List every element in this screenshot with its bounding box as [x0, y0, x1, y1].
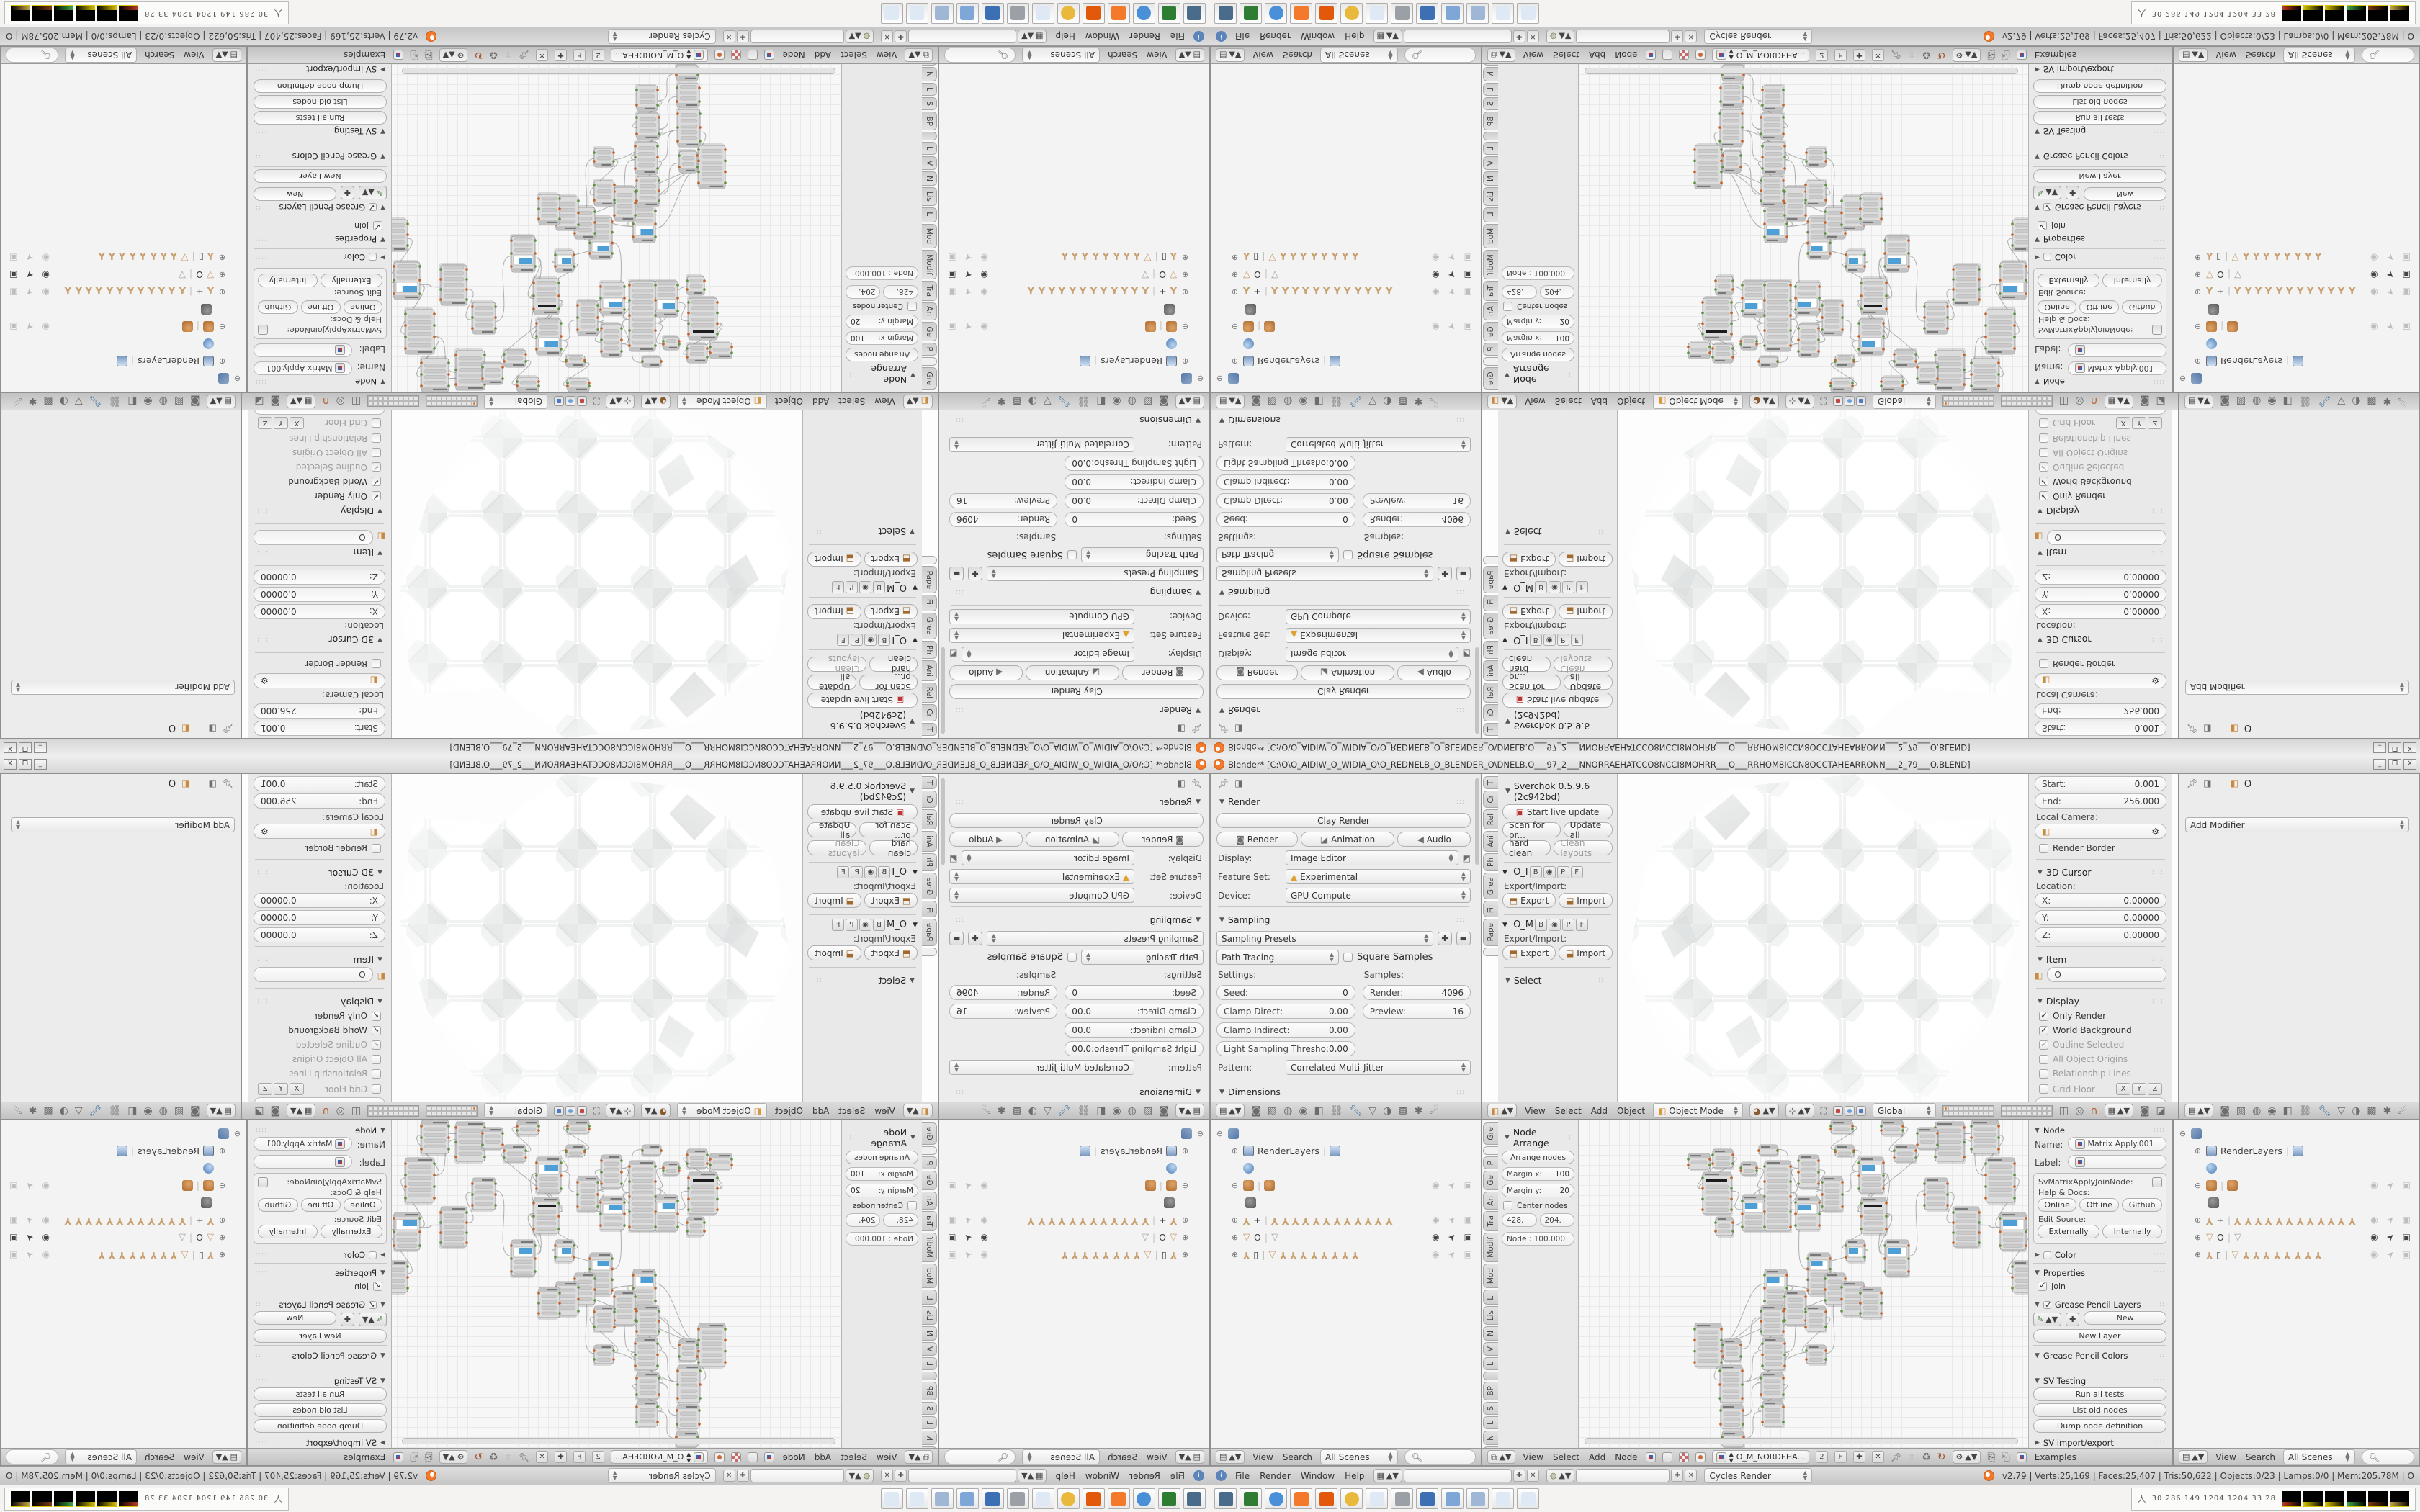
cursor-y-field[interactable]: Y:0.00000	[254, 587, 385, 602]
manipulator-toggle-icon[interactable]: ⛶	[1821, 397, 1827, 406]
compositing-tree-icon[interactable]	[748, 50, 758, 60]
sverchok-node[interactable]	[1783, 1291, 1807, 1327]
toolshelf-tab-active[interactable]	[1483, 556, 1498, 564]
menu-render[interactable]: Render	[1258, 32, 1292, 42]
physics-tab-icon[interactable]: ☄	[982, 397, 991, 407]
collapse-icon[interactable]: ⊖	[1196, 374, 1205, 384]
unlink-tree-button[interactable]: ✕	[1872, 49, 1884, 61]
restriction-toggles[interactable]: ◉➤︎▣	[1432, 1232, 1478, 1242]
dump-node-definition-button[interactable]: Dump node definition	[2033, 1419, 2166, 1433]
sverchok-node[interactable]	[566, 377, 591, 392]
sv-refresh-icon[interactable]: ♻	[489, 1452, 498, 1462]
g2-p-button[interactable]: P	[846, 919, 858, 931]
arrange-val1-field[interactable]: 428.	[1502, 1213, 1537, 1227]
render-layers-tab-icon[interactable]: ▧	[174, 1106, 184, 1116]
import-button-2[interactable]: ⬓ Import	[807, 552, 861, 567]
modifiers-tab-icon[interactable]: 🔧︎	[1058, 397, 1071, 407]
toolshelf-tab-p[interactable]: P	[922, 343, 937, 356]
sverchok-node[interactable]	[1761, 84, 1785, 111]
render-tab-icon[interactable]: ◙	[190, 1106, 200, 1116]
render-button[interactable]: ◙ Render	[1122, 832, 1204, 847]
object-tab-icon[interactable]: ◧	[1096, 1106, 1106, 1116]
gp-layers-checkbox[interactable]	[369, 1301, 377, 1309]
outliner-row[interactable]	[4, 336, 242, 353]
axis-z-button[interactable]: Z	[258, 417, 272, 429]
menu-view[interactable]: View	[2214, 1452, 2237, 1462]
sverchok-node[interactable]	[1805, 146, 1827, 167]
g1-b-button[interactable]: B	[878, 634, 890, 646]
sampling-presets-select[interactable]: Sampling Presets▲▼	[987, 931, 1204, 946]
outliner-row[interactable]: ⊖	[1215, 370, 1478, 387]
offline-button[interactable]: Offline	[2079, 1198, 2119, 1212]
world-background-checkbox[interactable]	[372, 1026, 381, 1035]
sverchok-node[interactable]	[600, 1155, 623, 1190]
outliner-tree[interactable]: ⊖⊕RenderLayers|⊖|◉➤︎▣⊕Y+|YYYYYYYYYYYY◉➤︎…	[2178, 1125, 2416, 1446]
taskbar-app-calculator[interactable]	[1466, 3, 1489, 24]
toolshelf-tab-n[interactable]: N	[1483, 1326, 1498, 1341]
menu-node[interactable]: Node	[781, 50, 806, 60]
outliner-row[interactable]: ⊕RenderLayers|	[942, 353, 1205, 370]
editor-type-button[interactable]: ▤▲▼	[1175, 48, 1204, 62]
physics-tab-icon[interactable]: ☄	[1429, 397, 1438, 407]
sverchok-node[interactable]	[1805, 1345, 1827, 1366]
material-tab-icon[interactable]: ◑	[1028, 1106, 1037, 1116]
editor-type-button[interactable]: ◧▲▼	[903, 395, 933, 408]
sverchok-node[interactable]	[593, 1345, 615, 1366]
menu-select[interactable]: Select	[1551, 1452, 1581, 1462]
info-editor-icon[interactable]: i	[1193, 1470, 1204, 1481]
menu-view[interactable]: View	[1251, 50, 1274, 60]
render-tab-icon[interactable]: ◙	[1159, 1106, 1169, 1116]
sampling-presets-select[interactable]: Sampling Presets▲▼	[1216, 566, 1433, 581]
sverchok-node[interactable]	[676, 81, 701, 107]
render-layers-tab-icon[interactable]: ▧	[2236, 397, 2246, 407]
clip-end-field[interactable]: End:256.000	[254, 703, 385, 719]
externally-button[interactable]: Externally	[321, 1225, 382, 1238]
layers-grid-2[interactable]	[2001, 396, 2053, 408]
taskbar-app-backup-disk[interactable]	[1158, 3, 1180, 24]
taskbar-app-disk-64[interactable]	[982, 3, 1004, 24]
preset-remove-button[interactable]: ▬	[949, 932, 964, 945]
sverchok-node[interactable]	[516, 1120, 540, 1137]
sverchok-node[interactable]	[576, 1176, 599, 1213]
gp-layers-checkbox[interactable]	[2043, 1301, 2051, 1309]
toolshelf-tab-ph[interactable]: Ph	[922, 641, 937, 659]
sverchok-node[interactable]	[1821, 299, 1844, 336]
new-layer-button[interactable]: New Layer	[2033, 1329, 2166, 1343]
compositing-tree-icon[interactable]	[1662, 50, 1672, 60]
toolshelf-tab-grea[interactable]: Grea	[922, 873, 937, 899]
sverchok-node[interactable]	[1739, 1162, 1758, 1177]
toolshelf-tab-p[interactable]: P	[922, 1156, 937, 1169]
toolshelf-tab-l[interactable]: L	[922, 142, 937, 155]
run-all-tests-button[interactable]: Run all tests	[2033, 1387, 2166, 1401]
sverchok-node[interactable]	[599, 1197, 626, 1232]
arrange-val2-field[interactable]: 204.	[846, 1213, 881, 1227]
sverchok-node[interactable]	[1804, 179, 1827, 206]
restriction-toggles[interactable]: ◉➤︎▣	[942, 287, 988, 297]
outliner-row[interactable]: ⊕▽O|▽◉➤︎▣	[2178, 1228, 2416, 1246]
sverchok-node[interactable]	[1952, 263, 1981, 305]
fake-user-button[interactable]: F	[1834, 1451, 1847, 1463]
axis-y-button[interactable]: Y	[274, 1083, 288, 1095]
collapse-icon[interactable]: ⊖	[1215, 1129, 1224, 1138]
sverchok-node[interactable]	[503, 1145, 527, 1164]
layers-grid-1[interactable]	[426, 396, 478, 408]
close-button[interactable]: X	[4, 742, 17, 753]
restriction-toggles[interactable]: ◉➤︎▣	[2370, 253, 2416, 263]
outliner-row[interactable]: ⊖	[2178, 370, 2416, 387]
sv-layout-button[interactable]: ⚙▲▼	[439, 48, 468, 62]
outline-selected-checkbox[interactable]	[372, 1040, 381, 1050]
toolshelf-tab-modif[interactable]: Modif	[1483, 250, 1498, 279]
item-name-field[interactable]: O	[254, 530, 373, 545]
outliner-row[interactable]	[4, 1159, 242, 1176]
cursor-x-field[interactable]: X:0.00000	[2035, 604, 2166, 619]
square-samples-checkbox[interactable]	[1067, 550, 1077, 559]
sverchok-node[interactable]	[709, 1153, 733, 1171]
sv-refresh-icon[interactable]: ♻	[1922, 50, 1931, 60]
sverchok-node[interactable]	[439, 263, 468, 305]
toolshelf-tab-modif[interactable]: Modif	[1483, 1233, 1498, 1262]
manipulator-widgets[interactable]	[1833, 1106, 1866, 1116]
cursor-x-field[interactable]: X:0.00000	[254, 604, 385, 619]
margin-x-field[interactable]: Margin x:100	[846, 1167, 918, 1181]
sverchok-node[interactable]	[676, 107, 702, 147]
shader-tree-icon[interactable]	[1646, 50, 1656, 60]
sv-bake-icon[interactable]: ↻	[474, 50, 483, 60]
snap-proportional-icon[interactable]: ◎	[336, 1106, 345, 1116]
toolshelf-tab-fil[interactable]: Fil	[922, 595, 937, 611]
toolshelf-tab-cr[interactable]: Cr	[922, 791, 937, 808]
g1-b-button[interactable]: B	[1530, 634, 1542, 646]
info-editor-icon[interactable]: i	[1216, 31, 1227, 42]
toolshelf-tab-lis[interactable]: Lis	[1483, 1306, 1498, 1325]
sverchok-node[interactable]	[1984, 307, 2016, 354]
taskbar-app-screenshot-tool[interactable]	[1183, 3, 1206, 24]
clay-render-button[interactable]: Clay Render	[949, 813, 1204, 828]
render-border-checkbox[interactable]	[372, 660, 381, 669]
menu-view[interactable]: View	[1145, 1452, 1168, 1462]
pin-icon[interactable]: 📌︎	[1191, 779, 1202, 788]
taskbar-app-image-viewer[interactable]	[956, 3, 979, 24]
outliner-row[interactable]	[1215, 336, 1478, 353]
toolshelf-tab-active[interactable]	[922, 357, 937, 366]
gp-new-button[interactable]: New	[254, 1311, 336, 1325]
sverchok-node[interactable]	[1687, 341, 1711, 359]
search-input[interactable]: 🔍︎	[944, 48, 1016, 63]
menu-add[interactable]: Add	[1587, 1452, 1607, 1462]
layers-grid-2[interactable]	[367, 1105, 419, 1117]
physics-tab-icon[interactable]: ☄	[2398, 397, 2407, 407]
restriction-toggles[interactable]: ◉➤︎▣	[2370, 1232, 2416, 1242]
users-count-badge[interactable]: 2	[592, 49, 604, 61]
sverchok-node[interactable]	[1794, 1197, 1821, 1232]
internally-button[interactable]: Internally	[258, 274, 318, 287]
margin-y-field[interactable]: Margin y:20	[1502, 315, 1574, 328]
restriction-toggles[interactable]: ◉➤︎▣	[1432, 253, 1478, 263]
constraints-tab-icon[interactable]: ⛓	[1077, 1106, 1090, 1116]
constraints-tab-icon[interactable]: ⛓	[2299, 1106, 2312, 1116]
toolshelf-tab-gre[interactable]: Gre	[1483, 367, 1498, 390]
snap-element-button[interactable]: ▦▲▼	[287, 1104, 315, 1117]
taskbar-app-disk-64[interactable]	[982, 1488, 1004, 1509]
modifiers-tab-icon[interactable]: 🔧︎	[2318, 1106, 2331, 1116]
render-samples-field[interactable]: Render:4096	[1363, 512, 1471, 527]
restriction-toggles[interactable]: ◉➤︎▣	[2370, 1249, 2416, 1259]
expand-icon[interactable]: ⊕	[1180, 1250, 1190, 1259]
sverchok-node[interactable]	[678, 149, 699, 173]
gp-layers-checkbox[interactable]	[2043, 204, 2051, 212]
menu-search[interactable]: Search	[1106, 50, 1139, 60]
outliner-row[interactable]: ⊖	[942, 1125, 1205, 1142]
horizontal-scrollbar[interactable]	[1585, 68, 2018, 74]
toolshelf-tab-l[interactable]: L	[1483, 83, 1498, 96]
add-modifier-select[interactable]: Add Modifier▲▼	[11, 817, 235, 832]
toolshelf-tab-t[interactable]: T	[922, 723, 937, 736]
scene-delete-button[interactable]: ✕	[1685, 30, 1697, 42]
preview-samples-field[interactable]: Preview:16	[949, 1004, 1057, 1019]
taskbar-app-screenshot-tool[interactable]	[1214, 3, 1237, 24]
only-render-checkbox[interactable]	[372, 1012, 381, 1021]
outline-selected-checkbox[interactable]	[372, 463, 381, 472]
menu-window[interactable]: Window	[1299, 1471, 1336, 1481]
center-nodes-checkbox[interactable]	[907, 1201, 917, 1210]
scene-tab-icon[interactable]: ◍	[1128, 1106, 1137, 1116]
restriction-toggles[interactable]: ◉➤︎▣	[1432, 322, 1478, 332]
docs-icon[interactable]	[2152, 325, 2162, 336]
sverchok-node[interactable]	[686, 1217, 706, 1238]
texture-tab-icon[interactable]: ▩	[43, 397, 53, 407]
toolshelf-tab-ph[interactable]: Ph	[1483, 641, 1498, 659]
scan-for-props-button[interactable]: Scan for pr...	[1502, 822, 1561, 837]
axis-y-button[interactable]: Y	[2132, 417, 2146, 429]
gp-add-button[interactable]: ✚	[341, 1313, 354, 1326]
outliner-row[interactable]: ⊕Y+|YYYYYYYYYYYY◉➤︎▣	[2178, 284, 2416, 301]
sverchok-node[interactable]	[1859, 192, 1883, 225]
outliner-row[interactable]: ⊕RenderLayers|	[4, 1142, 242, 1159]
sverchok-node[interactable]	[420, 356, 450, 392]
close-button[interactable]: X	[2403, 742, 2416, 753]
toolshelf-tab-li[interactable]: Li	[1483, 1290, 1498, 1305]
object-tab-icon[interactable]: ◧	[2283, 1106, 2293, 1116]
data-tab-icon[interactable]: ▽	[2337, 397, 2345, 407]
display-mode-select[interactable]: All Scenes▲▼	[1022, 48, 1100, 63]
object-origins-checkbox[interactable]	[372, 1055, 381, 1064]
sverchok-node[interactable]	[635, 84, 659, 111]
export-button-1[interactable]: ⬒ Export	[1502, 604, 1556, 619]
arrange-val1-field[interactable]: 428.	[884, 1213, 919, 1227]
render-button[interactable]: ◙ Render	[1216, 665, 1298, 680]
outliner-row[interactable]: ⊕Y+|YYYYYYYYYYYY◉➤︎▣	[2178, 1211, 2416, 1228]
horizontal-scrollbar[interactable]	[1585, 1438, 2018, 1444]
menu-help[interactable]: Help	[1054, 32, 1076, 42]
sverchok-tree-icon[interactable]	[714, 50, 725, 60]
axis-z-button[interactable]: Z	[258, 1083, 272, 1095]
taskbar-app-volume[interactable]	[1391, 1488, 1413, 1509]
toolshelf-tab-v[interactable]: V	[1483, 1342, 1498, 1356]
examples-menu[interactable]: Examples	[342, 1452, 387, 1462]
modifiers-tab-icon[interactable]: 🔧︎	[2318, 397, 2331, 407]
world-tab-icon[interactable]: ◉	[1112, 1106, 1121, 1116]
expand-icon[interactable]: ⊕	[1230, 1233, 1240, 1242]
collapse-icon[interactable]: ⊖	[233, 374, 242, 384]
sv-paste-icon[interactable]: ⎗	[2002, 1452, 2010, 1462]
clip-start-field[interactable]: Start:0.001	[254, 776, 385, 791]
g2-p-button[interactable]: P	[1562, 919, 1574, 931]
square-samples-checkbox[interactable]	[1343, 550, 1353, 559]
clean-layouts-button[interactable]: Clean layouts	[807, 657, 866, 672]
editor-type-button[interactable]: ⧉▲▼	[905, 1450, 933, 1464]
texture-tab-icon[interactable]: ▩	[1398, 1106, 1407, 1116]
sverchok-node[interactable]	[481, 361, 504, 384]
menu-file[interactable]: File	[1234, 1471, 1251, 1481]
toolshelf-tab-active[interactable]	[922, 1372, 937, 1380]
gp-new-button[interactable]: New	[2084, 187, 2166, 201]
restriction-toggles[interactable]: ◉➤︎▣	[1432, 1180, 1478, 1190]
expand-icon[interactable]: ⊕	[218, 1233, 227, 1242]
g2-p-button[interactable]: P	[846, 581, 858, 593]
expand-icon[interactable]: ⊕	[1230, 1215, 1240, 1225]
node-name-field[interactable]: Matrix Apply.001	[254, 1137, 352, 1151]
sverchok-node[interactable]	[1763, 279, 1792, 351]
list-old-nodes-button[interactable]: List old nodes	[254, 95, 387, 109]
expand-icon[interactable]: ⊕	[2193, 1146, 2202, 1156]
menu-view[interactable]: View	[1251, 1452, 1274, 1462]
render-layers-tab-icon[interactable]: ▧	[2236, 1106, 2246, 1116]
orientation-select[interactable]: Global▲▼	[484, 1103, 547, 1118]
expand-icon[interactable]: ⊕	[2193, 1215, 2202, 1225]
outliner-tree[interactable]: ⊖⊕RenderLayers|⊖|◉➤︎▣⊕Y+|YYYYYYYYYYYY◉➤︎…	[942, 66, 1205, 387]
material-tab-icon[interactable]: ◑	[60, 1106, 68, 1116]
toolshelf-tab-p[interactable]: P	[1483, 1156, 1498, 1169]
restriction-toggles[interactable]: ◉➤︎▣	[2370, 322, 2416, 332]
node-scale-field[interactable]: Node : 100.000	[1502, 266, 1574, 280]
menu-object[interactable]: Object	[1615, 1106, 1646, 1116]
sv-layout-button[interactable]: ⚙▲▼	[1953, 48, 1981, 62]
local-camera-field[interactable]: ◧⚙	[2035, 673, 2166, 688]
layers-grid-1[interactable]	[1942, 396, 1994, 408]
new-tree-button[interactable]: ✚	[555, 49, 567, 61]
sverchok-node[interactable]	[1718, 107, 1744, 147]
toolshelf-tab-n[interactable]: N	[1483, 67, 1498, 81]
expand-icon[interactable]: ⊕	[2193, 288, 2202, 297]
preview-samples-field[interactable]: Preview:16	[949, 493, 1057, 508]
pin-icon[interactable]: 📌︎	[1891, 1453, 1901, 1462]
scene-tab-icon[interactable]: ◍	[2252, 1106, 2261, 1116]
gp-add-button[interactable]: ✚	[2066, 186, 2079, 200]
g1-p-button[interactable]: P	[851, 634, 863, 646]
collapse-icon[interactable]: ⊖	[1196, 1129, 1205, 1138]
import-button-2[interactable]: ⬓ Import	[1559, 552, 1613, 567]
expand-icon[interactable]: ⊕	[218, 1215, 227, 1225]
collapse-icon[interactable]: ⊖	[2193, 1181, 2202, 1190]
taskbar-app-chrome-2[interactable]	[1340, 3, 1363, 24]
collapse-icon[interactable]: ⊖	[1180, 323, 1190, 332]
arrange-nodes-button[interactable]: Arrange nodes	[846, 1151, 918, 1164]
sv-paste-icon[interactable]: ⎗	[410, 50, 418, 60]
menu-render[interactable]: Render	[1258, 1471, 1292, 1481]
menu-file[interactable]: File	[1169, 1471, 1186, 1481]
item-name-field[interactable]: O	[254, 967, 373, 982]
sverchok-node[interactable]	[676, 1405, 701, 1431]
menu-help[interactable]: Help	[1343, 32, 1366, 42]
outliner-tree[interactable]: ⊖⊕RenderLayers|⊖|◉➤︎▣⊕Y+|YYYYYYYYYYYY◉➤︎…	[2178, 66, 2416, 387]
taskbar-app-chrome[interactable]	[1133, 1488, 1155, 1509]
cursor-y-field[interactable]: Y:0.00000	[254, 910, 385, 925]
restore-button[interactable]: ❐	[2388, 759, 2401, 770]
sverchok-node[interactable]	[393, 260, 421, 300]
particles-tab-icon[interactable]: ✱	[1415, 1106, 1423, 1116]
outliner-row[interactable]	[4, 1194, 242, 1211]
texture-tree-icon[interactable]	[1679, 1452, 1689, 1462]
fake-user-button[interactable]: F	[573, 49, 586, 61]
outliner-row[interactable]	[2178, 336, 2416, 353]
center-nodes-checkbox[interactable]	[907, 302, 917, 311]
users-count-badge[interactable]: 2	[1816, 49, 1828, 61]
toolshelf-tab-pape[interactable]: Pape	[922, 919, 937, 945]
constraints-tab-icon[interactable]: ⛓	[1330, 1106, 1343, 1116]
sverchok-node[interactable]	[554, 1240, 575, 1264]
outline-selected-checkbox[interactable]	[2039, 463, 2048, 472]
dump-node-definition-button[interactable]: Dump node definition	[254, 79, 387, 93]
outliner-row[interactable]	[1215, 301, 1478, 318]
integrator-select[interactable]: Path Tracing▲▼	[1216, 950, 1339, 965]
object-tab-icon[interactable]: ◧	[1314, 1106, 1324, 1116]
sverchok-node[interactable]	[1845, 248, 1866, 272]
sverchok-node[interactable]	[565, 1145, 586, 1158]
toolshelf-tab-pape[interactable]: Pape	[1483, 566, 1498, 593]
editor-type-button[interactable]: ▤▲▼	[1175, 1450, 1204, 1464]
outliner-row[interactable]	[1215, 1159, 1478, 1176]
toolshelf-tab-s[interactable]: S	[1483, 97, 1498, 111]
display-mode-select[interactable]: All Scenes▲▼	[1320, 48, 1398, 63]
fake-user-button[interactable]: F	[1834, 49, 1847, 61]
outliner-row[interactable]: ⊕Y+|YYYYYYYYYYYY◉➤︎▣	[942, 284, 1205, 301]
render-button[interactable]: ◙ Render	[1216, 832, 1298, 847]
expand-icon[interactable]: ⊕	[2193, 271, 2202, 280]
layout-delete-button[interactable]: ✕	[881, 1470, 893, 1482]
toolshelf-tab-active[interactable]	[922, 132, 937, 140]
menu-add[interactable]: Add	[813, 50, 833, 60]
expand-icon[interactable]: ⊕	[1180, 288, 1190, 297]
render-tab-icon[interactable]: ◙	[2220, 397, 2230, 407]
pivot-center-button[interactable]: ⊹▲▼	[1785, 1104, 1814, 1117]
layout-add-button[interactable]: ✚	[1513, 1470, 1525, 1482]
integrator-select[interactable]: Path Tracing▲▼	[1216, 547, 1339, 562]
color-checkbox[interactable]	[2043, 1251, 2051, 1259]
texture-tab-icon[interactable]: ▩	[1398, 397, 1407, 407]
github-button[interactable]: Github	[2122, 1198, 2162, 1212]
node-label-field[interactable]	[2068, 1155, 2166, 1169]
sverchok-tree-icon[interactable]	[714, 1452, 725, 1462]
snap-proportional-icon[interactable]: ◎	[2075, 397, 2084, 407]
sverchok-node[interactable]	[471, 1178, 497, 1212]
sverchok-node[interactable]	[1893, 1145, 1917, 1164]
manipulator-toggle-icon[interactable]: ⛶	[593, 397, 599, 406]
list-old-nodes-button[interactable]: List old nodes	[254, 1403, 387, 1417]
light-sampling-field[interactable]: Light Sampling Thresho:0.00	[1216, 1041, 1355, 1056]
expand-icon[interactable]: ⊕	[1180, 1233, 1190, 1242]
pattern-select[interactable]: Correlated Multi-Jitter▲▼	[949, 1060, 1134, 1075]
sv-bake-icon[interactable]: ↻	[474, 1452, 483, 1462]
clamp-indirect-field[interactable]: Clamp Indirect:0.00	[1065, 474, 1204, 490]
clip-start-field[interactable]: Start:0.001	[254, 721, 385, 736]
light-sampling-field[interactable]: Light Sampling Thresho:0.00	[1065, 1041, 1204, 1056]
outliner-row[interactable]	[942, 336, 1205, 353]
taskbar-app-spiral-app[interactable]	[1083, 1488, 1105, 1509]
scene-selector[interactable]: ◍▲▼✚✕	[723, 1469, 874, 1482]
